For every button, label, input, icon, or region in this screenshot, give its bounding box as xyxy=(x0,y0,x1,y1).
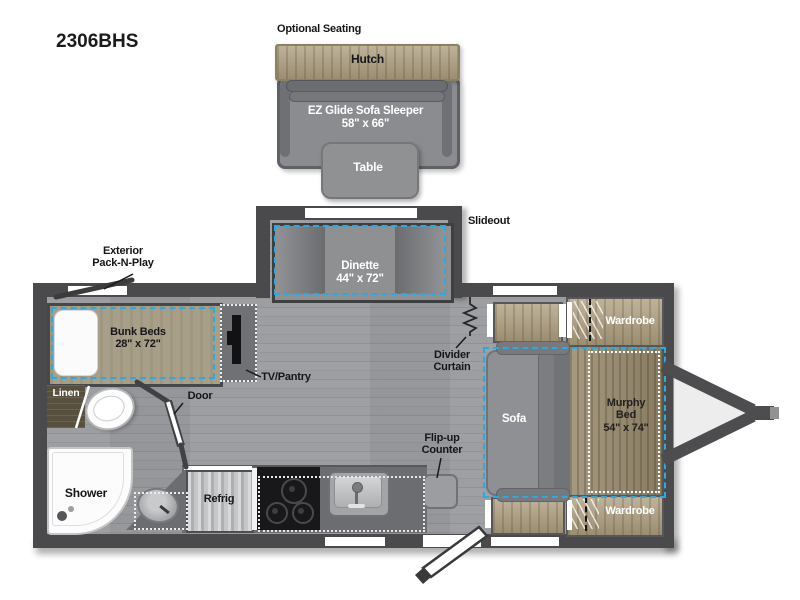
hitch-coupler xyxy=(770,407,779,419)
divider-curtain-pointer xyxy=(456,337,466,348)
door-pointer xyxy=(174,403,183,414)
flip-up-pointer xyxy=(437,458,441,478)
sofa-sleeper-label: EZ Glide Sofa Sleeper 58" x 66" xyxy=(287,105,444,131)
sofa-label: Sofa xyxy=(492,413,536,426)
divider-curtain xyxy=(464,297,476,336)
floorplan-canvas: 2306BHS Optional Seating Hutch EZ Glide … xyxy=(0,0,800,600)
hutch-label: Hutch xyxy=(275,53,460,66)
bathroom-wall xyxy=(137,382,170,403)
murphy-bed-label: Murphy Bed 54" x 74" xyxy=(590,397,662,434)
divider-curtain-label: Divider Curtain xyxy=(430,349,474,374)
refrigerator-label: Refrig xyxy=(186,493,252,505)
pack-n-play-label: Exterior Pack-N-Play xyxy=(86,245,160,270)
bathroom-wall xyxy=(181,445,186,467)
linework-overlay xyxy=(0,0,800,600)
table-label: Table xyxy=(321,161,415,174)
entry-door-leaf xyxy=(423,527,487,577)
optional-seating-label: Optional Seating xyxy=(277,23,361,35)
slideout-label: Slideout xyxy=(468,215,510,227)
linen-label: Linen xyxy=(47,388,85,400)
shower-label: Shower xyxy=(58,487,114,500)
model-title: 2306BHS xyxy=(56,31,138,53)
wardrobe-top-label: Wardrobe xyxy=(602,315,658,327)
tv-pantry-label: TV/Pantry xyxy=(258,371,314,383)
flip-up-counter-label: Flip-up Counter xyxy=(417,432,467,457)
wardrobe-bottom-label: Wardrobe xyxy=(602,505,658,517)
bunk-beds-label: Bunk Beds 28" x 72" xyxy=(86,326,190,351)
pack-n-play-flap xyxy=(56,280,132,297)
dinette-label: Dinette 44" x 72" xyxy=(300,260,420,286)
door-label: Door xyxy=(178,390,222,402)
